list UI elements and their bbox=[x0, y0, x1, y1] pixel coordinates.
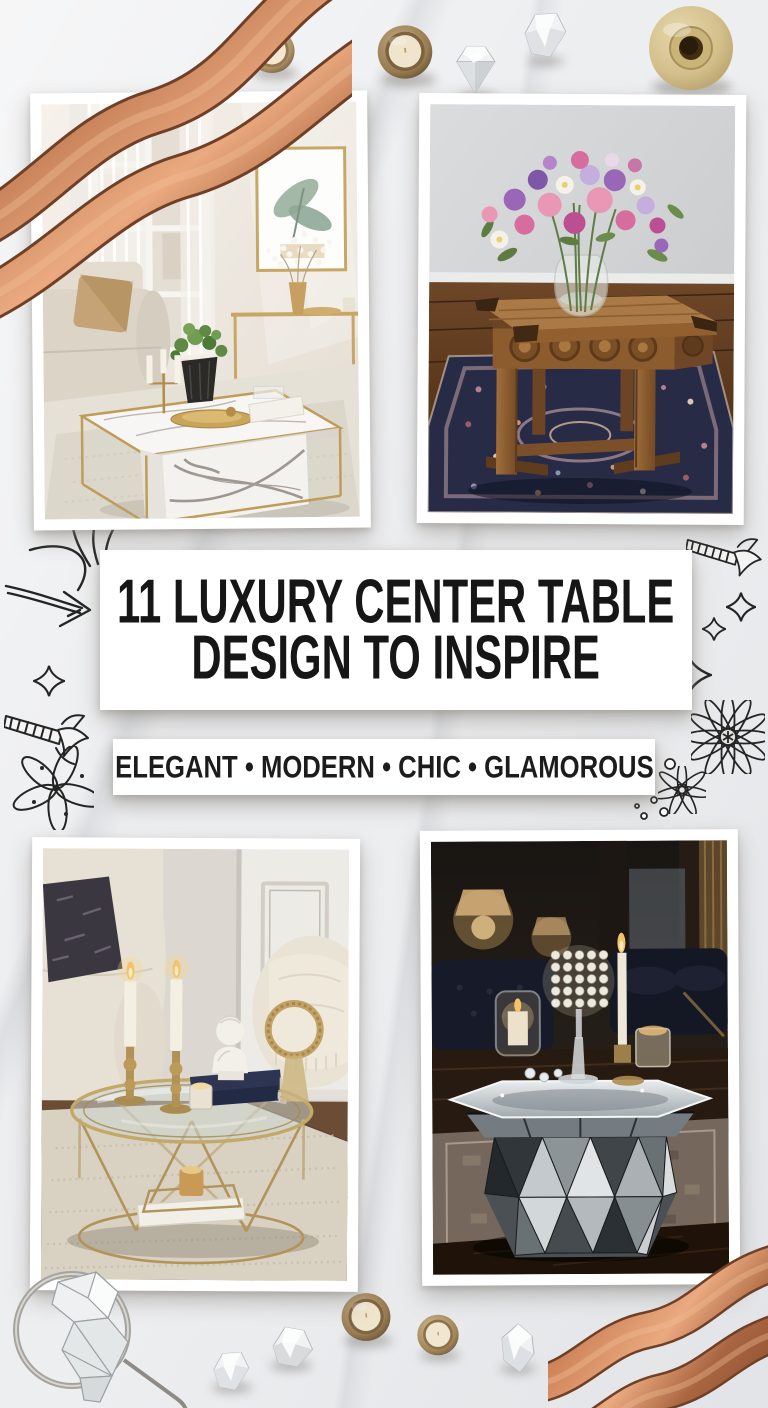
crystal-diamond-icon bbox=[450, 38, 500, 100]
subtitle-card: ELEGANT • MODERN • CHIC • GLAMOROUS bbox=[113, 739, 655, 795]
sparkle-doodle bbox=[702, 617, 726, 641]
gold-spool-icon bbox=[645, 4, 737, 94]
photo-round-gold-glass-table bbox=[30, 837, 360, 1292]
flower-doodle bbox=[12, 746, 94, 830]
crystal-diamond-icon bbox=[208, 1348, 254, 1394]
photo-carved-wood-table bbox=[417, 93, 747, 525]
tealight-candle-icon bbox=[376, 22, 434, 82]
title-line-2: DESIGN TO INSPIRE bbox=[192, 619, 601, 696]
tealight-candle-icon bbox=[340, 1290, 392, 1344]
subtitle-text: ELEGANT • MODERN • CHIC • GLAMOROUS bbox=[115, 747, 654, 787]
title-card: 11 LUXURY CENTER TABLE DESIGN TO INSPIRE bbox=[100, 550, 692, 710]
sparkle-doodle bbox=[33, 665, 65, 697]
silver-ring-crystal-icon bbox=[0, 1264, 210, 1408]
pin-poster: 11 LUXURY CENTER TABLE DESIGN TO INSPIRE… bbox=[0, 0, 768, 1408]
sparkle-doodle bbox=[726, 592, 756, 622]
photo-mirrored-faceted-table bbox=[420, 829, 740, 1286]
crystal-diamond-icon bbox=[520, 8, 570, 62]
tealight-candle-icon bbox=[416, 1312, 460, 1358]
hatched-arrow-doodle bbox=[686, 524, 768, 586]
daisy-doodle bbox=[691, 700, 765, 774]
crystal-oval-icon bbox=[498, 1322, 538, 1374]
copper-ribbon-icon bbox=[0, 0, 352, 430]
copper-ribbon-icon bbox=[548, 1232, 768, 1408]
crystal-gem-icon bbox=[266, 1322, 318, 1370]
swoosh-arrow-doodle bbox=[2, 540, 106, 632]
